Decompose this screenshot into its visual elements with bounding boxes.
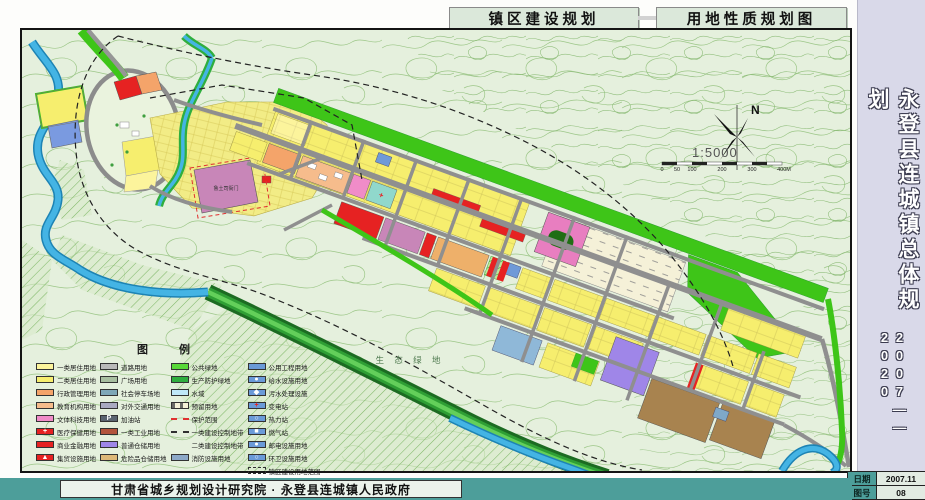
line-control-zone-2 xyxy=(171,444,189,446)
swatch-protective-green xyxy=(171,376,189,383)
legend-item-label: 商业金融用地 xyxy=(57,440,96,450)
swatch-substation: + xyxy=(248,402,266,409)
swatch-utility xyxy=(248,363,266,370)
title-block-table: 日期 2007.11 图号 08 xyxy=(847,471,925,500)
legend-item-label: 二类居住用地 xyxy=(57,375,96,385)
legend-item-label: 保护范围 xyxy=(192,414,218,424)
legend-columns: 一类居住用地二类居住用地行政管理用地教育机构用地文体科技用地+医疗保健用地商业金… xyxy=(36,360,291,477)
swatch-post-telecom: ● xyxy=(248,441,266,448)
legend-column: 一类居住用地二类居住用地行政管理用地教育机构用地文体科技用地+医疗保健用地商业金… xyxy=(36,360,96,477)
legend-item: 二类居住用地 xyxy=(36,373,96,386)
legend-item: 公用工程用地 xyxy=(248,360,321,373)
legend-item-label: 一类居住用地 xyxy=(57,362,96,372)
legend-item: 公共绿地 xyxy=(171,360,244,373)
swatch-square xyxy=(100,376,118,383)
legend-item-label: 对外交通用地 xyxy=(121,401,160,411)
legend-item-label: 加油站 xyxy=(121,414,141,424)
swatch-parking xyxy=(100,389,118,396)
legend-item: 广场用地 xyxy=(100,373,167,386)
swatch-heating: ○ xyxy=(248,415,266,422)
legend-item: 消防设施用地 xyxy=(171,451,244,464)
legend-item: ●给水设施用地 xyxy=(248,373,321,386)
legend-item-label: 危险品仓储用地 xyxy=(121,453,167,463)
legend-item-label: 公用工程用地 xyxy=(269,362,308,372)
header-title-box-1: 镇区建设规划 xyxy=(449,7,639,30)
legend-item-label: 环卫设施用地 xyxy=(269,453,308,463)
legend-title: 图 例 xyxy=(36,341,291,357)
legend-item-label: 燃气站 xyxy=(269,427,289,437)
credit-text: 甘肃省城乡规划设计研究院 · 永登县连城镇人民政府 xyxy=(111,481,411,498)
scale-tick: 400M xyxy=(777,167,791,173)
legend-item: 教育机构用地 xyxy=(36,399,96,412)
date-value: 2007.11 xyxy=(877,472,925,486)
sidebar: 永登县连城镇总体规划 2007——2020 日期 2007.11 图号 08 xyxy=(857,0,925,500)
legend-item-label: 道路用地 xyxy=(121,362,147,372)
legend-item-label: 消防设施用地 xyxy=(192,453,231,463)
scale-tick: 50 xyxy=(674,167,680,173)
legend-item: 行政管理用地 xyxy=(36,386,96,399)
swatch-hazard-warehouse xyxy=(100,454,118,461)
legend-item-label: 一类工业用地 xyxy=(121,427,160,437)
swatch-market-mark: ▲ xyxy=(37,454,53,462)
swatch-gas-station: P xyxy=(100,415,118,422)
legend-item: +医疗保健用地 xyxy=(36,425,96,438)
legend-item: ■燃气站 xyxy=(248,425,321,438)
header-title-1: 镇区建设规划 xyxy=(489,8,600,29)
north-label: N xyxy=(751,103,760,117)
swatch-medical: + xyxy=(36,428,54,435)
header-title-2: 用地性质规划图 xyxy=(687,8,817,29)
credit-box: 甘肃省城乡规划设计研究院 · 永登县连城镇人民政府 xyxy=(60,480,462,498)
swatch-residential-1 xyxy=(36,363,54,370)
swatch-culture-sports xyxy=(36,415,54,422)
swatch-medical-mark: + xyxy=(37,428,53,436)
legend-item-label: 一类建设控制地带 xyxy=(192,427,244,437)
legend-column: 公共绿地生产防护绿地水域预留用地保护范围一类建设控制地带二类建设控制地带消防设施… xyxy=(171,360,244,477)
legend-item-label: 水域 xyxy=(192,388,205,398)
header-title-box-2: 用地性质规划图 xyxy=(656,7,847,30)
swatch-water-supply-mark: ● xyxy=(249,376,265,384)
legend-item-label: 给水设施用地 xyxy=(269,375,308,385)
swatch-education xyxy=(36,402,54,409)
legend-item: 一类建设控制地带 xyxy=(171,425,244,438)
legend-item: 文体科技用地 xyxy=(36,412,96,425)
legend-item: 对外交通用地 xyxy=(100,399,167,412)
swatch-sanitation: ○ xyxy=(248,454,266,461)
legend-item-label: 社会停车场地 xyxy=(121,388,160,398)
legend-item: ○环卫设施用地 xyxy=(248,451,321,464)
legend-item: 保护范围 xyxy=(171,412,244,425)
swatch-water-supply: ● xyxy=(248,376,266,383)
swatch-heating-mark: ○ xyxy=(249,415,265,423)
legend-item-label: 生产防护绿地 xyxy=(192,375,231,385)
legend-item: 镇区建设用地范围 xyxy=(248,464,321,477)
legend-item: ◆污水处理设施 xyxy=(248,386,321,399)
swatch-residential-2 xyxy=(36,376,54,383)
legend-item: +变电站 xyxy=(248,399,321,412)
swatch-gas: ■ xyxy=(248,428,266,435)
swatch-sewage-mark: ◆ xyxy=(249,389,265,397)
legend-item-label: 镇区建设用地范围 xyxy=(269,466,321,476)
legend-item: 普通仓储用地 xyxy=(100,438,167,451)
scale-ratio-label: 1:5000 xyxy=(692,145,738,160)
legend-item-label: 集贸设施用地 xyxy=(57,453,96,463)
line-protection-boundary xyxy=(171,418,189,420)
legend-item: 二类建设控制地带 xyxy=(171,438,244,451)
legend-item-label: 医疗保健用地 xyxy=(57,427,96,437)
line-town-boundary xyxy=(248,467,266,474)
swatch-warehouse xyxy=(100,441,118,448)
legend-item: 预留用地 xyxy=(171,399,244,412)
legend-item: 社会停车场地 xyxy=(100,386,167,399)
legend: 图 例 一类居住用地二类居住用地行政管理用地教育机构用地文体科技用地+医疗保健用… xyxy=(36,341,291,477)
swatch-road xyxy=(100,363,118,370)
swatch-external-transport xyxy=(100,402,118,409)
map-label-lu-yamen: 鲁土司衙门 xyxy=(213,185,238,192)
legend-column: 公用工程用地●给水设施用地◆污水处理设施+变电站○热力站■燃气站●邮电设施用地○… xyxy=(248,360,321,477)
legend-item-label: 广场用地 xyxy=(121,375,147,385)
legend-item-label: 二类建设控制地带 xyxy=(192,440,244,450)
swatch-fire-facility xyxy=(171,454,189,461)
legend-item: 生产防护绿地 xyxy=(171,373,244,386)
legend-item-label: 预留用地 xyxy=(192,401,218,411)
legend-item: 道路用地 xyxy=(100,360,167,373)
legend-item-label: 文体科技用地 xyxy=(57,414,96,424)
legend-item-label: 热力站 xyxy=(269,414,289,424)
swatch-post-telecom-mark: ● xyxy=(249,441,265,449)
legend-column: 道路用地广场用地社会停车场地对外交通用地P加油站一类工业用地普通仓储用地危险品仓… xyxy=(100,360,167,477)
swatch-substation-mark: + xyxy=(249,402,265,410)
legend-item: ○热力站 xyxy=(248,412,321,425)
legend-item: 一类工业用地 xyxy=(100,425,167,438)
bottom-bar: 甘肃省城乡规划设计研究院 · 永登县连城镇人民政府 xyxy=(0,478,852,500)
scale-tick: 200 xyxy=(717,167,726,173)
legend-item-label: 变电站 xyxy=(269,401,289,411)
swatch-administration xyxy=(36,389,54,396)
map-label-eco-green: 生 态 绿 地 xyxy=(375,355,444,365)
legend-item-label: 污水处理设施 xyxy=(269,388,308,398)
legend-item: 商业金融用地 xyxy=(36,438,96,451)
swatch-commercial xyxy=(36,441,54,448)
swatch-industry-1 xyxy=(100,428,118,435)
legend-item: 水域 xyxy=(171,386,244,399)
legend-item-label: 普通仓储用地 xyxy=(121,440,160,450)
sidebar-plan-title: 永登县连城镇总体规划 xyxy=(862,88,922,324)
scale-tick: 300 xyxy=(747,167,756,173)
swatch-gas-mark: ■ xyxy=(249,428,265,436)
legend-item: 一类居住用地 xyxy=(36,360,96,373)
legend-item: P加油站 xyxy=(100,412,167,425)
swatch-reserved-land xyxy=(171,402,189,409)
legend-item-label: 行政管理用地 xyxy=(57,388,96,398)
swatch-sanitation-mark: ○ xyxy=(249,454,265,462)
header-connector-line xyxy=(638,16,656,20)
legend-item-label: 教育机构用地 xyxy=(57,401,96,411)
legend-item-label: 邮电设施用地 xyxy=(269,440,308,450)
legend-item: ▲集贸设施用地 xyxy=(36,451,96,464)
swatch-sewage: ◆ xyxy=(248,389,266,396)
scale-tick: 100 xyxy=(687,167,696,173)
legend-item-label: 公共绿地 xyxy=(192,362,218,372)
line-control-zone-1 xyxy=(171,431,189,433)
legend-item: ●邮电设施用地 xyxy=(248,438,321,451)
swatch-gas-station-mark: P xyxy=(101,415,117,423)
legend-item: 危险品仓储用地 xyxy=(100,451,167,464)
plan-sheet: 镇区建设规划 用地性质规划图 xyxy=(0,0,925,500)
scale-tick: 0 xyxy=(660,167,663,173)
swatch-public-green xyxy=(171,363,189,370)
swatch-market: ▲ xyxy=(36,454,54,461)
swatch-water xyxy=(171,389,189,396)
figure-number-value: 08 xyxy=(877,486,925,500)
